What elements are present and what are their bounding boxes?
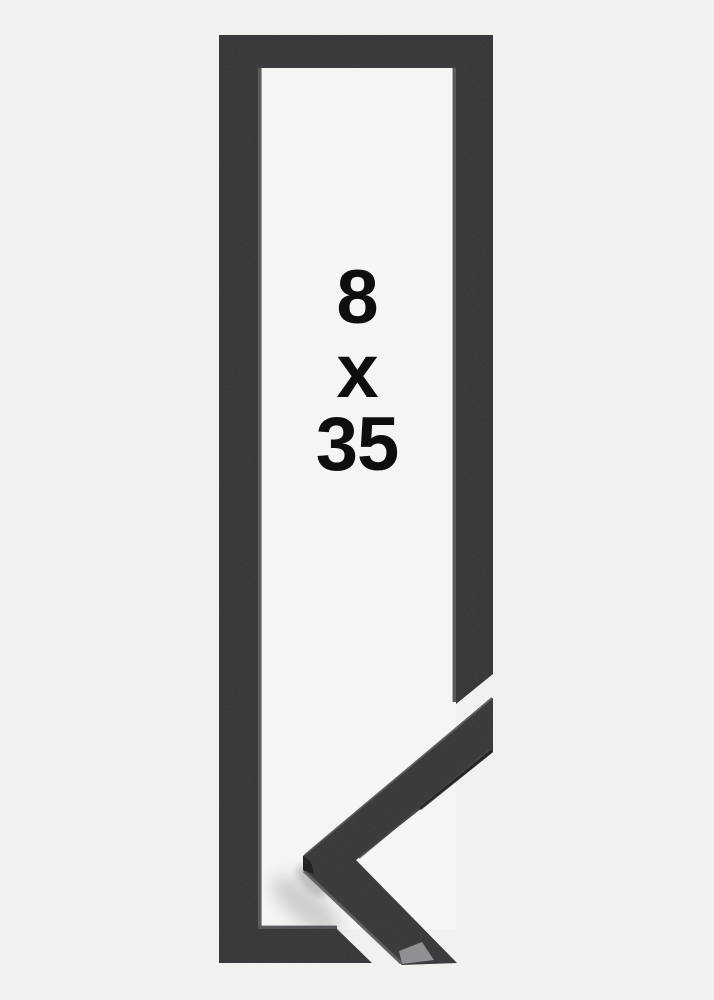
size-separator: x — [257, 335, 457, 409]
size-label: 8 x 35 — [257, 261, 457, 482]
product-image-canvas: 8 x 35 — [0, 0, 714, 1000]
size-height: 35 — [257, 408, 457, 482]
frame-illustration — [0, 0, 714, 1000]
size-width: 8 — [257, 261, 457, 335]
